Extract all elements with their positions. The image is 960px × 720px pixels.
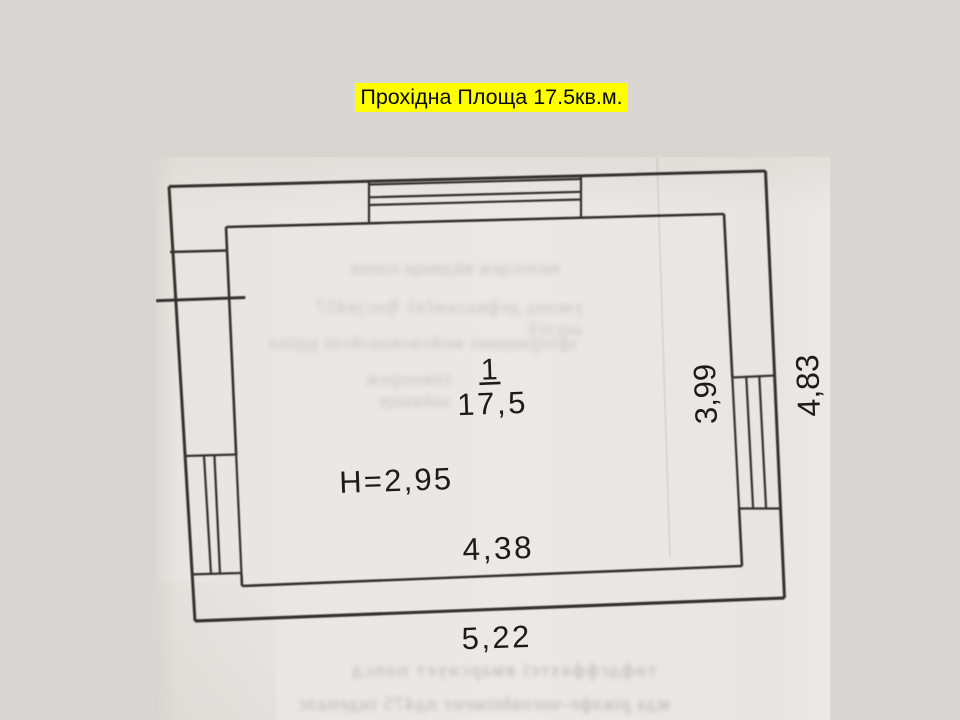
svg-text:4,38: 4,38 xyxy=(462,529,535,567)
svg-text:1: 1 xyxy=(480,353,498,387)
svg-text:5,22: 5,22 xyxy=(461,619,532,656)
svg-text:H=2,95: H=2,95 xyxy=(339,461,454,500)
svg-text:3,99: 3,99 xyxy=(687,363,724,425)
svg-text:4,83: 4,83 xyxy=(789,354,827,417)
svg-text:17,5: 17,5 xyxy=(457,385,529,422)
